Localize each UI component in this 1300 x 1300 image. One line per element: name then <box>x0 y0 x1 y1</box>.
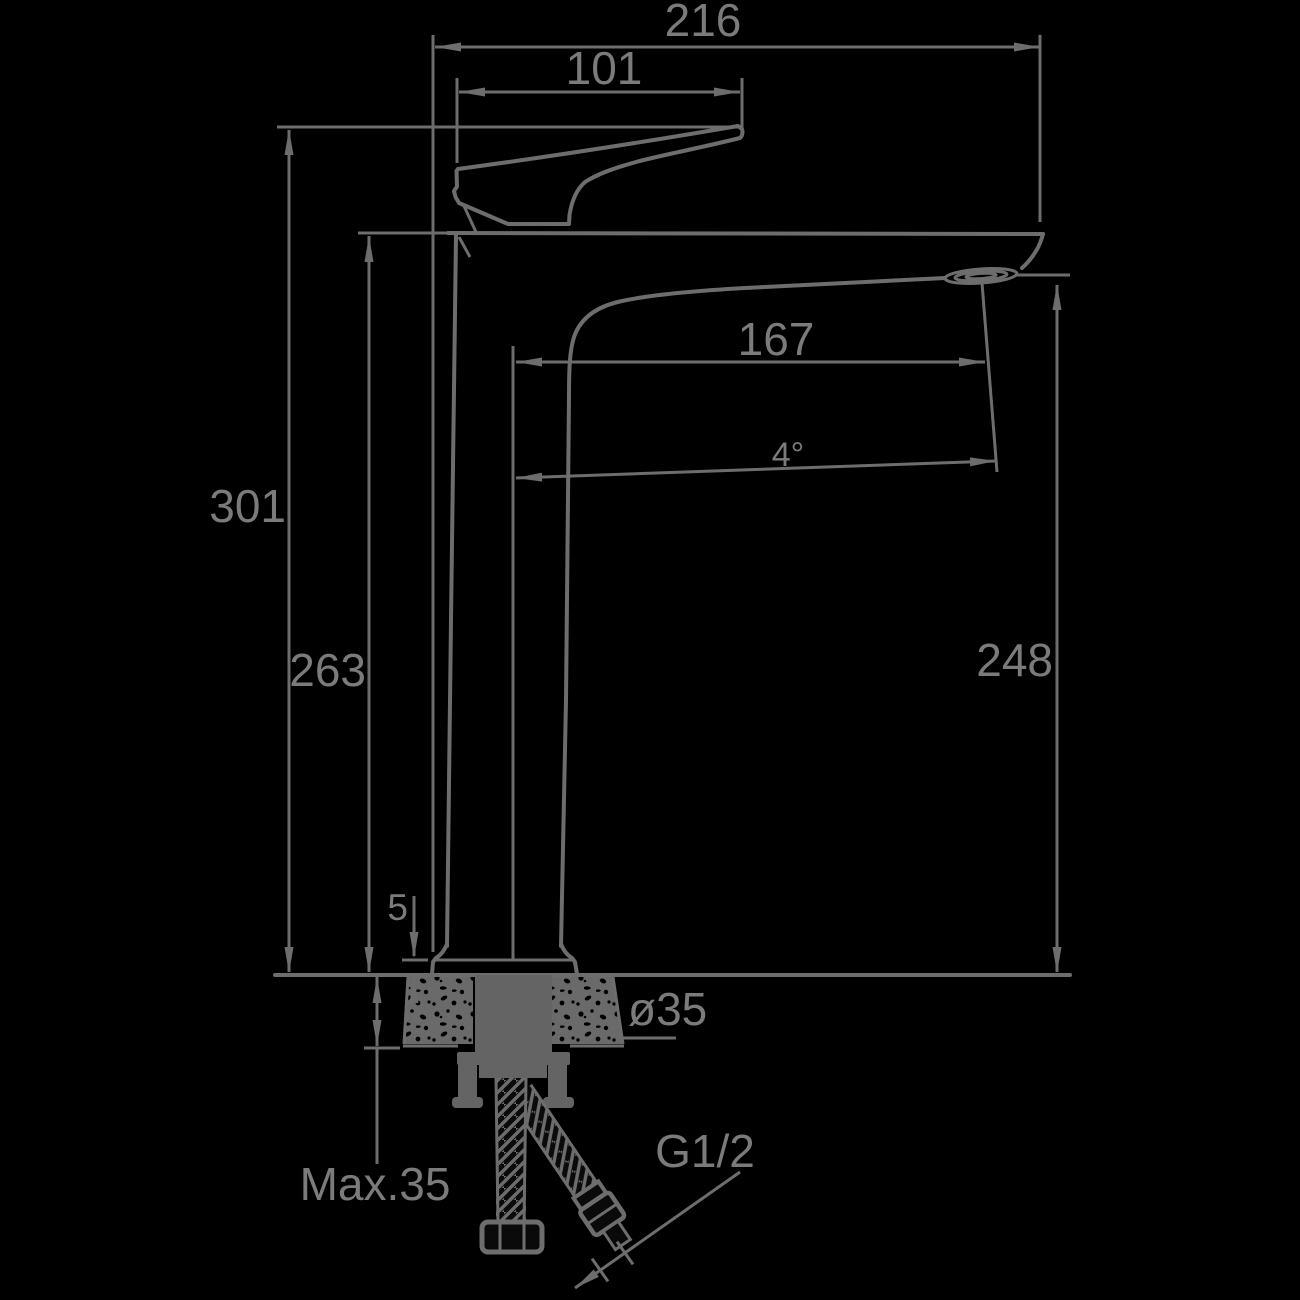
dimension-spout-reach-label: 167 <box>738 313 815 365</box>
body-left-edge <box>447 235 456 946</box>
thread-callout-label: G1/2 <box>655 1125 755 1177</box>
dimension-spout-angle-label: 4° <box>772 436 805 474</box>
faucet-outline <box>432 126 1043 974</box>
dimension-spout-angle: 4° <box>516 436 996 482</box>
technical-drawing-canvas: 216 101 301 263 167 4° <box>0 0 1300 1300</box>
mounting-stud-left <box>458 1065 477 1098</box>
dimension-spout-height-label: 248 <box>976 634 1053 686</box>
dimension-total-height: 301 <box>209 127 742 973</box>
mounting-stud-right <box>548 1065 567 1098</box>
dimension-overall-width-label: 216 <box>665 0 742 46</box>
mounting-hub <box>479 1065 547 1078</box>
mounting-foot-left <box>452 1097 483 1108</box>
dimension-base-gap-label: 5 <box>387 887 408 928</box>
counter-granite-right <box>552 977 623 1044</box>
aerator <box>945 267 1018 286</box>
dimension-handle-length-label: 101 <box>566 42 643 94</box>
dimension-body-height: 263 <box>289 233 450 973</box>
dimension-total-height-label: 301 <box>209 480 286 532</box>
dimension-spout-reach: 167 <box>513 283 997 961</box>
mounting-shank <box>475 975 552 1052</box>
hose-end-nut <box>482 1222 542 1252</box>
mounting-foot-right <box>543 1097 574 1108</box>
body-front-seam <box>459 237 470 257</box>
faucet-handle <box>454 126 742 224</box>
mounting-plate <box>457 1052 570 1065</box>
dimension-hole-diameter: ø35 <box>620 983 707 1038</box>
faucet-dimension-drawing: 216 101 301 263 167 4° <box>0 0 1300 1300</box>
dimension-hole-diameter-label: ø35 <box>628 983 707 1035</box>
dimension-max-thickness-label: Max.35 <box>300 1158 451 1210</box>
spout-underside-edge <box>561 278 945 946</box>
dimension-overall-width: 216 <box>433 0 1040 952</box>
spout-top-edge <box>448 233 1043 234</box>
dimension-body-height-label: 263 <box>289 644 366 696</box>
dimension-handle-length: 101 <box>457 42 742 163</box>
spout-tip-edge <box>1022 234 1043 268</box>
